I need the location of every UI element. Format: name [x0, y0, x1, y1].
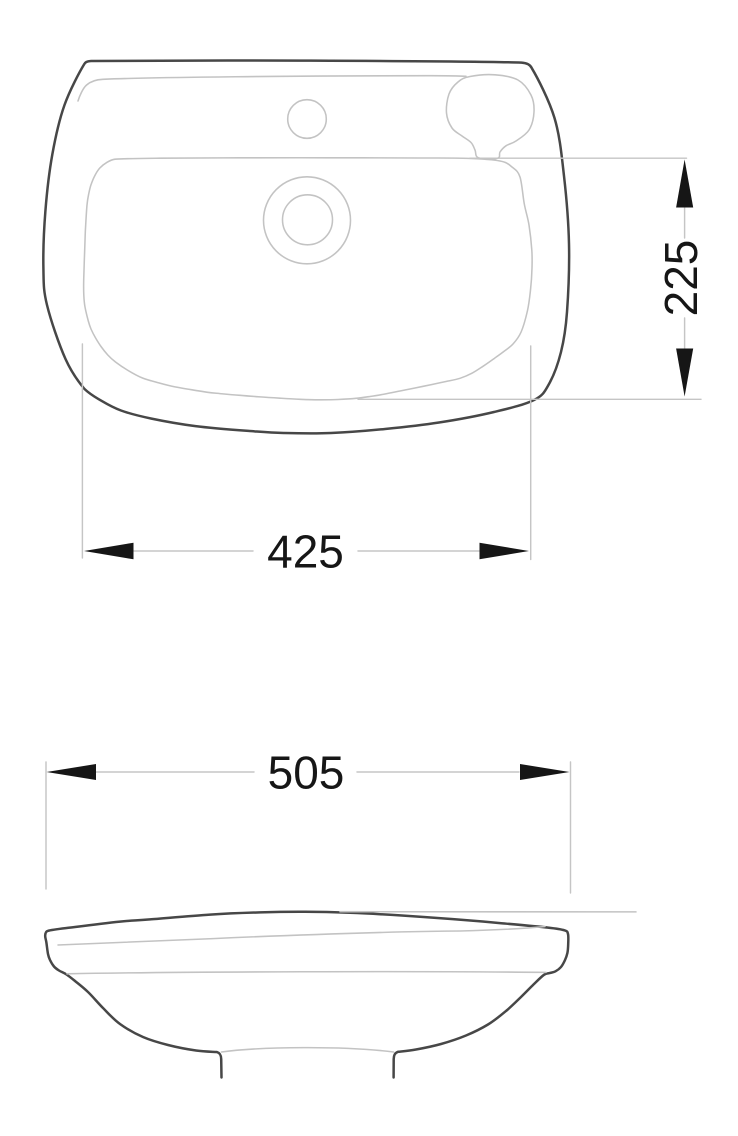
svg-text:505: 505: [268, 747, 345, 799]
svg-text:425: 425: [267, 526, 344, 578]
svg-text:225: 225: [655, 240, 707, 317]
